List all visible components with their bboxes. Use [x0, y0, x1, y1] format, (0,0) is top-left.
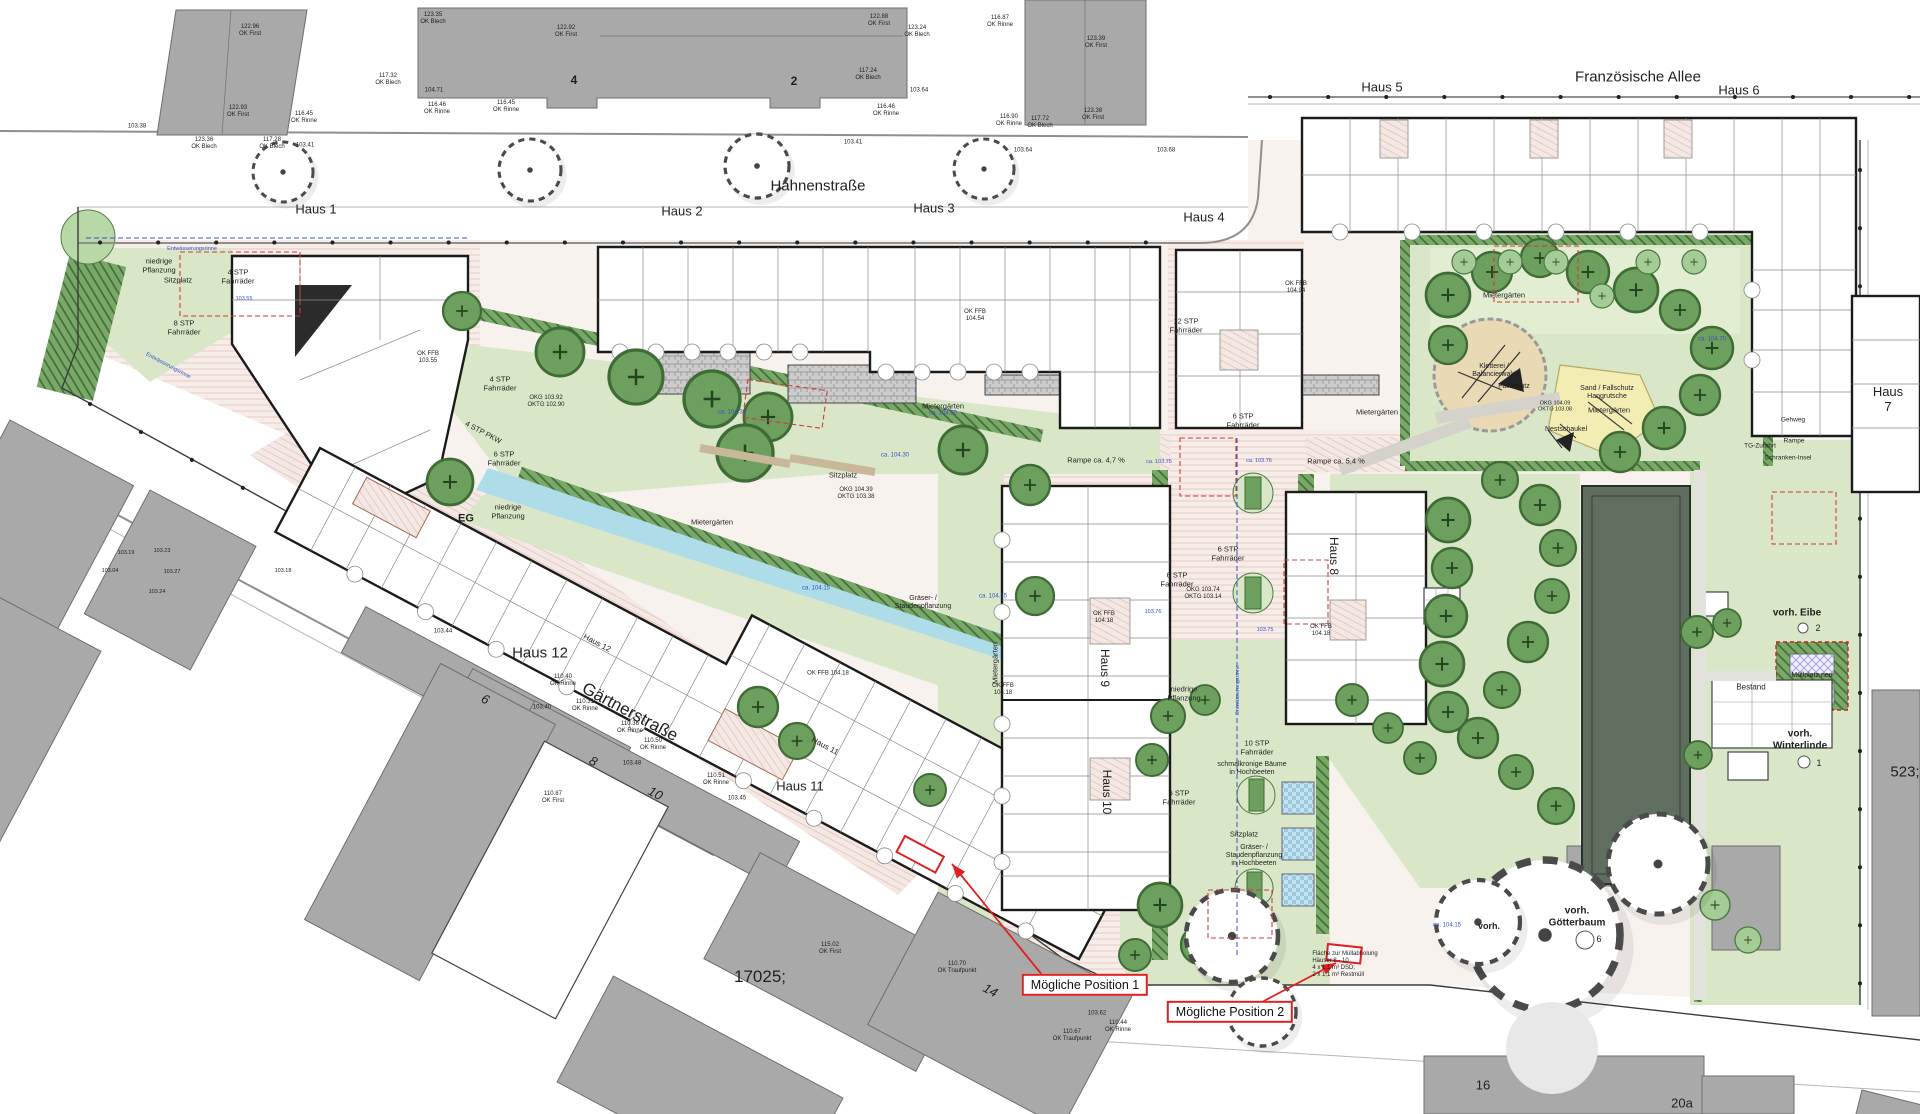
planter-tree — [1237, 776, 1275, 814]
tree-marker — [1798, 756, 1810, 768]
garden-structure — [1728, 752, 1768, 780]
planter-tree — [1233, 473, 1273, 513]
site-plan-page: { "document": {"type": "architectural si… — [0, 0, 1920, 1114]
possible-position-2-marker — [1326, 944, 1361, 963]
tree-marker — [1798, 623, 1808, 633]
existing-buildings-north — [157, 0, 1146, 135]
tree-shadow — [1506, 1002, 1598, 1094]
tree-marker — [1576, 931, 1594, 949]
garden-building — [1712, 680, 1832, 748]
planter-tree — [1233, 573, 1273, 613]
building-haus-7 — [1852, 296, 1920, 492]
building-haus-9-10 — [1002, 486, 1170, 910]
site-plan-drawing — [0, 0, 1920, 1114]
